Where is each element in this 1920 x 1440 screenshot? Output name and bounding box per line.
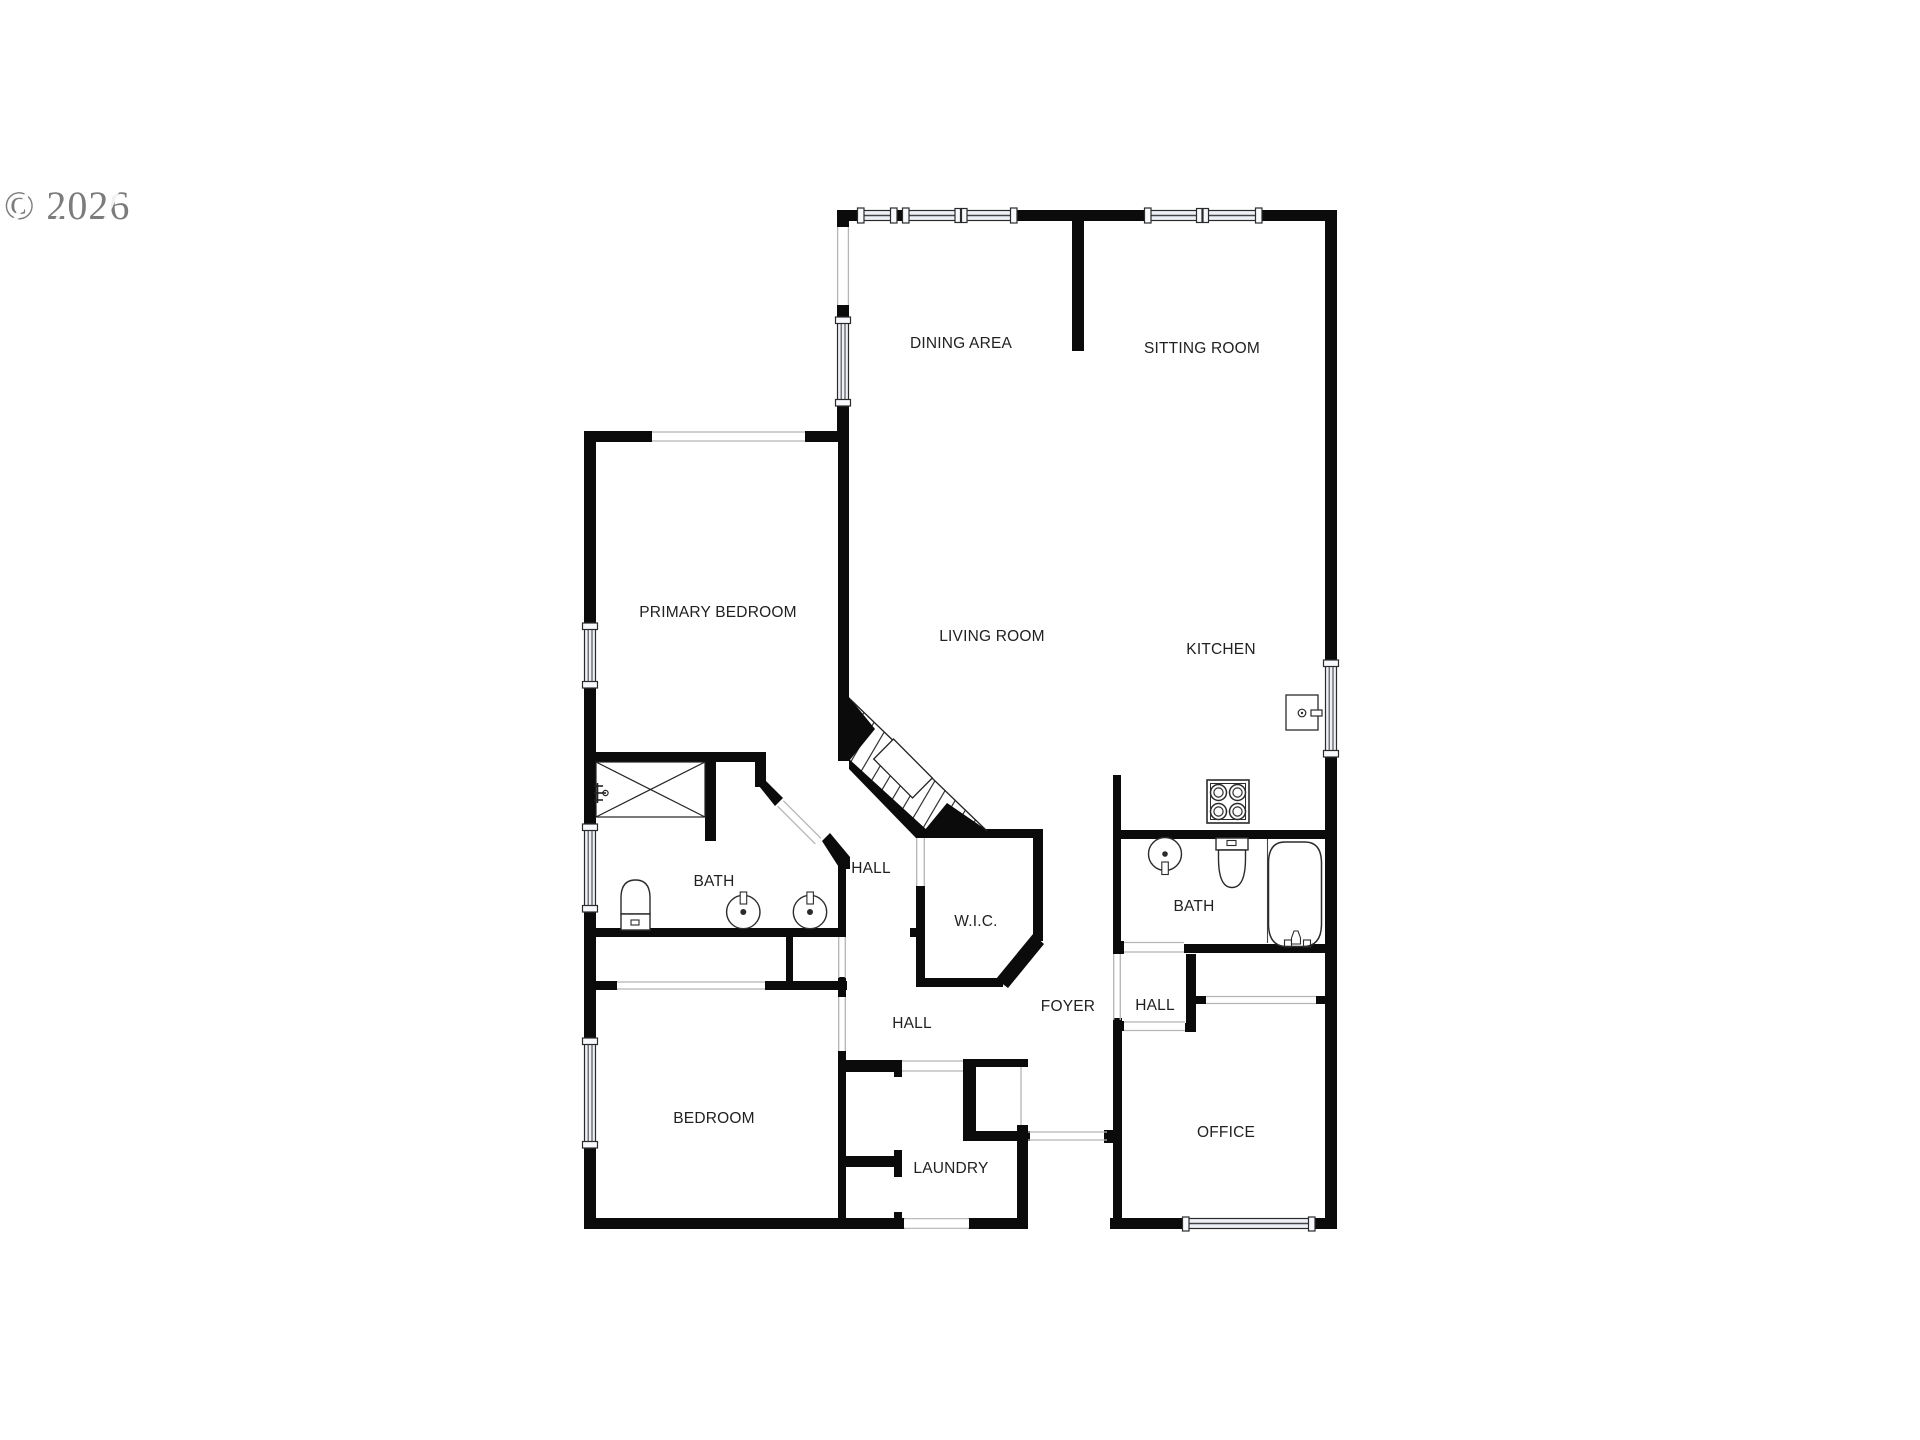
svg-text:BEDROOM: BEDROOM bbox=[673, 1110, 755, 1127]
svg-text:BATH: BATH bbox=[1174, 898, 1215, 915]
svg-text:W.I.C.: W.I.C. bbox=[954, 913, 997, 930]
svg-text:LAUNDRY: LAUNDRY bbox=[913, 1160, 988, 1177]
svg-text:HALL: HALL bbox=[892, 1015, 932, 1032]
svg-text:KITCHEN: KITCHEN bbox=[1186, 641, 1255, 658]
svg-text:OFFICE: OFFICE bbox=[1197, 1124, 1255, 1141]
svg-text:BATH: BATH bbox=[694, 873, 735, 890]
svg-text:DINING AREA: DINING AREA bbox=[910, 335, 1013, 352]
svg-text:FOYER: FOYER bbox=[1041, 998, 1095, 1015]
svg-text:HALL: HALL bbox=[851, 860, 891, 877]
svg-text:LIVING ROOM: LIVING ROOM bbox=[939, 628, 1045, 645]
svg-text:PRIMARY BEDROOM: PRIMARY BEDROOM bbox=[639, 604, 796, 621]
svg-text:SITTING ROOM: SITTING ROOM bbox=[1144, 340, 1260, 357]
svg-text:HALL: HALL bbox=[1135, 997, 1175, 1014]
